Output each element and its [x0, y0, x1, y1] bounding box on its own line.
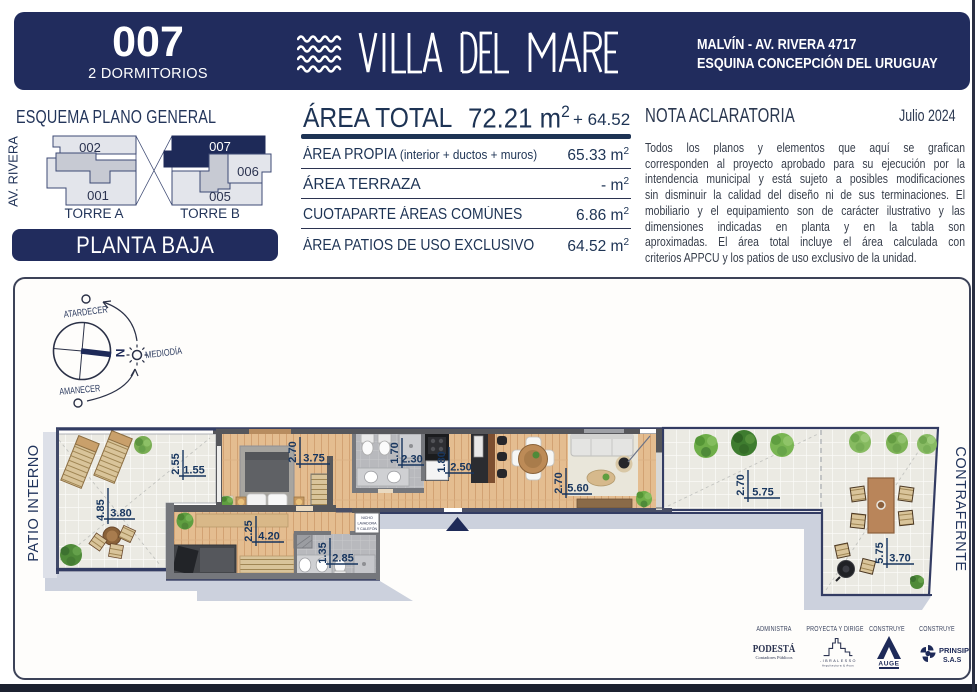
svg-text:ATARDECER: ATARDECER: [63, 304, 108, 320]
svg-text:2.25: 2.25: [243, 520, 255, 541]
svg-text:1.35: 1.35: [317, 542, 329, 563]
svg-text:2.50: 2.50: [450, 462, 471, 474]
svg-text:2.55: 2.55: [170, 453, 182, 474]
svg-text:AUGE: AUGE: [878, 661, 899, 668]
svg-text:NICHO: NICHO: [361, 516, 373, 520]
svg-text:S.A.S: S.A.S: [943, 657, 962, 664]
svg-text:2.70: 2.70: [735, 474, 747, 495]
svg-text:1.80: 1.80: [436, 451, 448, 472]
svg-text:Arquitectura & Avos: Arquitectura & Avos: [822, 663, 854, 667]
svg-text:PRINSIP: PRINSIP: [939, 646, 969, 655]
svg-text:2.70: 2.70: [553, 472, 565, 493]
svg-text:1.70: 1.70: [389, 442, 401, 463]
svg-text:1.55: 1.55: [183, 465, 204, 477]
svg-text:5.75: 5.75: [752, 487, 773, 499]
svg-text:4.20: 4.20: [258, 531, 279, 543]
svg-text:CONTRAFERNTE: CONTRAFERNTE: [952, 446, 968, 571]
svg-text:3.70: 3.70: [889, 553, 910, 565]
svg-text:N: N: [113, 349, 127, 358]
svg-text:LAVADORA: LAVADORA: [357, 522, 377, 526]
svg-text:2.85: 2.85: [332, 553, 353, 565]
svg-text:5.60: 5.60: [567, 483, 588, 495]
svg-text:LIBRALESSO: LIBRALESSO: [820, 659, 856, 663]
svg-text:Y CALEFÓN: Y CALEFÓN: [357, 526, 378, 531]
svg-text:2.30: 2.30: [401, 454, 422, 466]
svg-text:3.75: 3.75: [303, 453, 324, 465]
svg-text:4.85: 4.85: [95, 499, 107, 520]
svg-text:5.75: 5.75: [874, 542, 886, 563]
svg-text:2.70: 2.70: [287, 441, 299, 462]
svg-text:3.80: 3.80: [110, 508, 131, 520]
svg-text:PATIO INTERNO: PATIO INTERNO: [26, 444, 42, 561]
svg-text:MEDIODÍA: MEDIODÍA: [145, 346, 184, 361]
svg-text:AMANECER: AMANECER: [59, 383, 101, 398]
